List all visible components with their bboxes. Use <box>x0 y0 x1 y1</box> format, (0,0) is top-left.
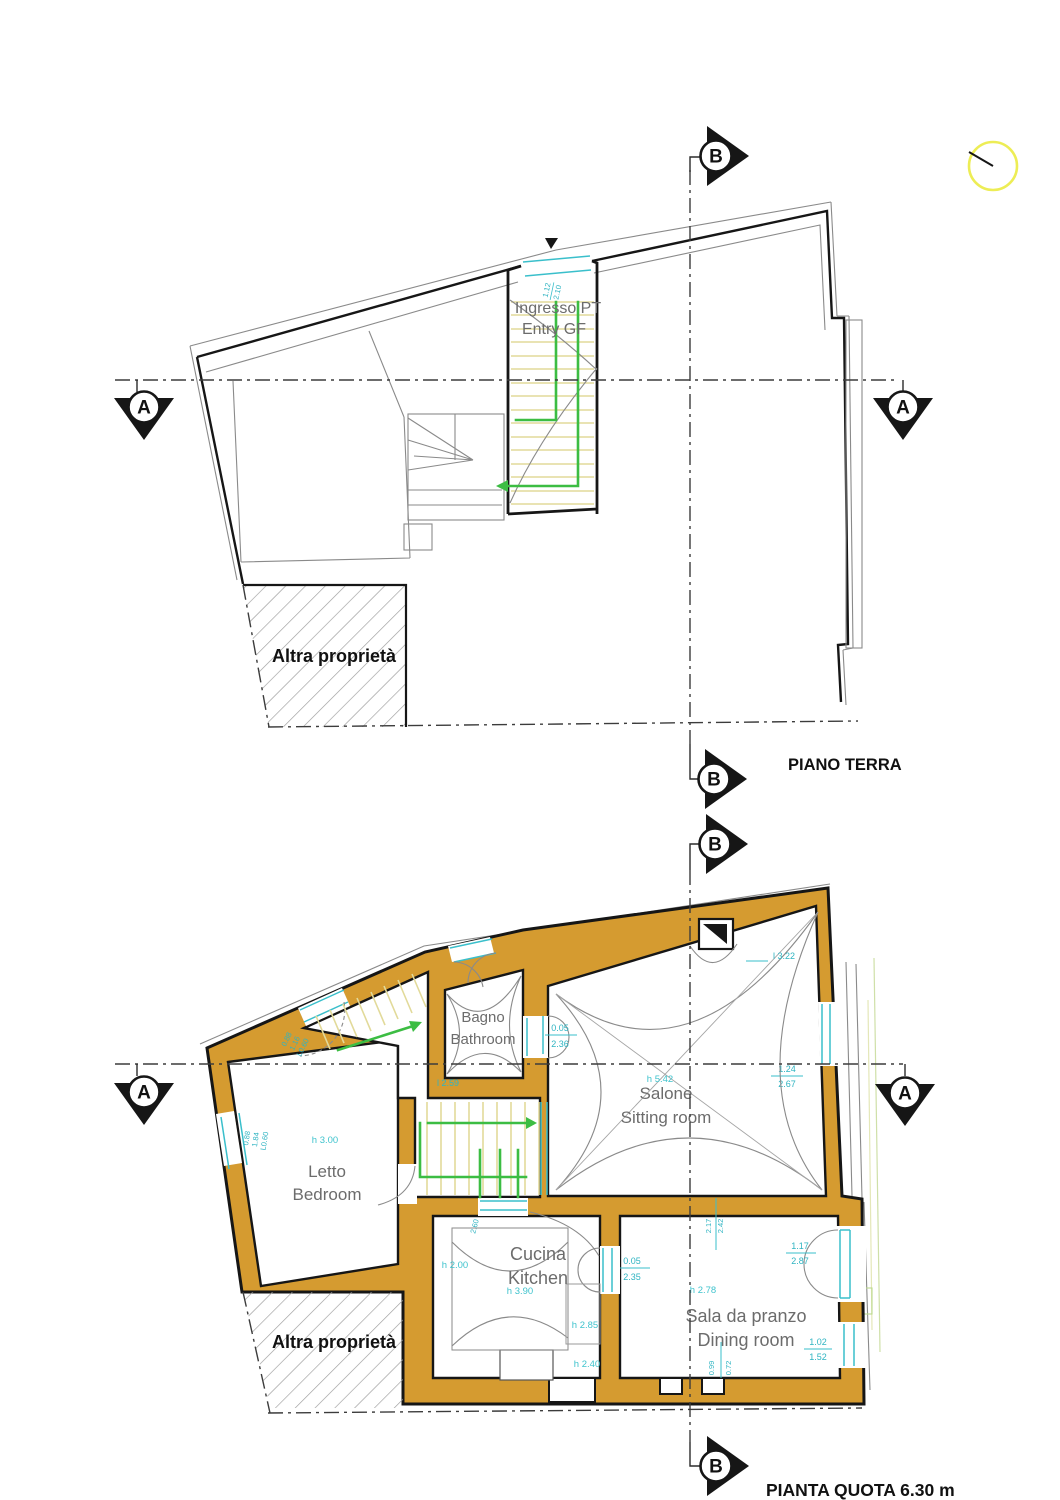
section-marker-a-right-upper: A <box>873 392 933 441</box>
room-label-salone-it: Salone <box>640 1084 693 1103</box>
cucina-door-h: 2.35 <box>623 1272 641 1282</box>
entry-door: 1.12 2.10 <box>523 256 591 302</box>
other-property-label-upper: Altra proprietà <box>272 646 397 666</box>
cucina-low-height: h 2.40 <box>574 1359 600 1370</box>
winder-stair <box>404 414 504 550</box>
plan-title-quota-630: PIANTA QUOTA 6.30 m <box>766 1480 955 1500</box>
bagno-door-h: 2.36 <box>551 1039 569 1049</box>
pranzo-window-w: 1.17 <box>791 1241 809 1251</box>
svg-text:l 3.22: l 3.22 <box>773 951 795 961</box>
room-label-cucina-en: Kitchen <box>508 1268 568 1288</box>
section-marker-b-bottom-lower: B <box>701 1436 750 1496</box>
room-label-salone-en: Sitting room <box>621 1108 712 1127</box>
section-marker-a-right-lower: A <box>875 1078 935 1127</box>
section-marker-b-bottom-upper: B <box>699 749 748 809</box>
svg-text:2.42: 2.42 <box>716 1219 725 1234</box>
section-marker-a-left-lower: A <box>114 1077 174 1126</box>
room-label-pranzo-en: Dining room <box>697 1330 794 1350</box>
svg-text:A: A <box>896 398 910 419</box>
entry-direction-triangle <box>545 238 558 249</box>
room-label-bagno-en: Bathroom <box>450 1031 515 1048</box>
cucina-door-w: 0.05 <box>623 1256 641 1266</box>
svg-text:B: B <box>709 147 723 168</box>
section-marker-b-top-upper: B <box>701 126 750 186</box>
svg-text:0.72: 0.72 <box>724 1361 733 1376</box>
entry-door-dimension: 1.12 2.10 <box>540 280 563 302</box>
svg-text:B: B <box>709 1457 723 1478</box>
svg-text:B: B <box>708 835 722 856</box>
other-property-label-lower: Altra proprietà <box>272 1332 397 1352</box>
cucina-nook-height: h 2.85 <box>572 1320 598 1331</box>
svg-text:2.17: 2.17 <box>704 1219 713 1234</box>
cucina-left-height: h 2.00 <box>442 1260 468 1271</box>
bagno-width-dim: l 2.59 <box>437 1078 459 1088</box>
room-label-letto-it: Letto <box>308 1162 346 1181</box>
plan-title-piano-terra: PIANO TERRA <box>788 756 902 774</box>
pranzo-side-h: 1.52 <box>809 1352 827 1362</box>
room-label-ingresso-en: Entry GF <box>522 321 586 338</box>
pranzo-height: h 2.78 <box>690 1285 716 1296</box>
pranzo-window-h: 2.87 <box>791 1256 809 1266</box>
svg-text:A: A <box>137 398 151 419</box>
room-label-letto-en: Bedroom <box>293 1185 362 1204</box>
room-label-pranzo-it: Sala da pranzo <box>685 1306 806 1326</box>
letto-height: h 3.00 <box>312 1135 338 1146</box>
dim-text: 2.10 <box>551 284 563 300</box>
floor-plans-svg: 1.12 2.10 Ingresso PT Entry GF Altra pro… <box>0 0 1060 1500</box>
svg-text:0.99: 0.99 <box>707 1361 716 1376</box>
plan-quota-630: 0.88 1.16 L0.60 0.88 1.84 L0.60 0.0 <box>115 844 955 1500</box>
bagno-door-w: 0.05 <box>551 1023 569 1033</box>
salone-window-w: 1.24 <box>778 1064 796 1074</box>
compass-indicator <box>969 142 1017 190</box>
room-label-cucina-it: Cucina <box>510 1244 567 1264</box>
svg-text:A: A <box>137 1083 151 1104</box>
plan-piano-terra: 1.12 2.10 Ingresso PT Entry GF Altra pro… <box>115 157 903 779</box>
other-property-hatch-upper: Altra proprietà <box>243 585 406 727</box>
pranzo-side-w: 1.02 <box>809 1337 827 1347</box>
room-label-ingresso-it: Ingresso PT <box>515 300 601 317</box>
svg-text:A: A <box>898 1084 912 1105</box>
room-label-bagno-it: Bagno <box>461 1009 504 1026</box>
section-marker-b-top-lower: B <box>700 814 749 874</box>
section-marker-a-left-upper: A <box>114 392 174 441</box>
svg-text:B: B <box>707 770 721 791</box>
architectural-drawing-sheet: 1.12 2.10 Ingresso PT Entry GF Altra pro… <box>0 0 1060 1500</box>
section-lines-upper <box>115 170 897 744</box>
other-property-hatch-lower: Altra proprietà <box>243 1292 403 1413</box>
